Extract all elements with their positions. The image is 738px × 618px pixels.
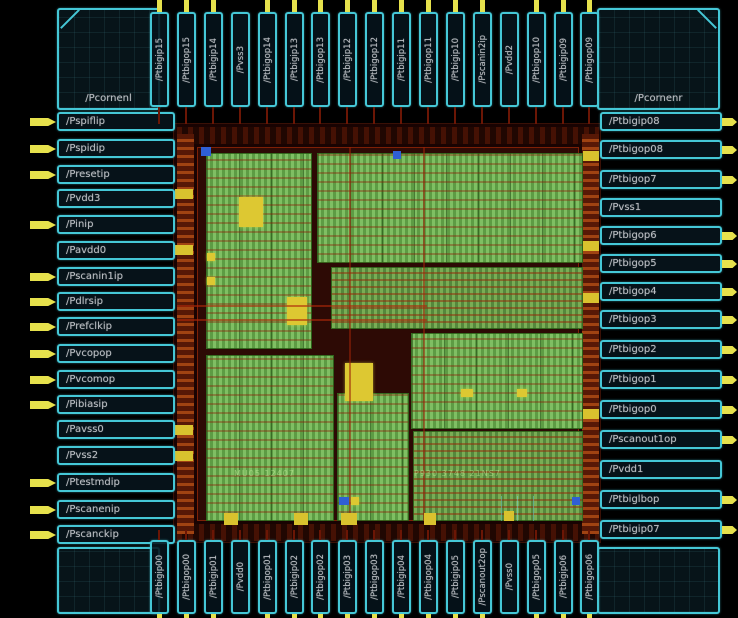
macro-block-center-right [411, 333, 583, 429]
pin-marker [211, 614, 216, 618]
pad-lead [346, 107, 348, 124]
pin-marker [722, 375, 737, 385]
pin-marker [372, 0, 377, 12]
pad-label: /Pinip [66, 220, 93, 230]
pad-label: /Pvdd1 [609, 465, 643, 475]
pin-marker [372, 614, 377, 618]
pin-marker [265, 0, 270, 12]
pin-marker [30, 117, 56, 127]
layout-marker-blue [393, 151, 401, 159]
pin-marker [30, 297, 56, 307]
pad-corner-bottom-right[interactable] [597, 547, 720, 614]
pad-label: /Ptbigop10 [532, 37, 542, 83]
pad-label: /Pvdd2 [505, 45, 515, 74]
pad-ptbigop10[interactable]: /Ptbigop10 [527, 12, 546, 107]
pin-marker [722, 117, 737, 127]
pad-label: /Ptbigip09 [559, 38, 569, 81]
macro-block-topright [317, 153, 583, 263]
pad-ptbiglbop[interactable]: /Ptbiglbop [600, 490, 722, 509]
pin-marker [426, 0, 431, 12]
pad-label: /Ptbigop09 [585, 37, 595, 83]
pad-label: /Pvss2 [66, 451, 98, 461]
pad-pavss0[interactable]: /Pavss0 [57, 420, 175, 439]
pad-lead [454, 107, 456, 124]
pad-label: /Ptbigop2 [609, 345, 657, 355]
pad-ptbigip15[interactable]: /Ptbigip15 [150, 12, 169, 107]
pad-ptbigop03[interactable]: /Ptbigop03 [365, 540, 384, 614]
pad-lead [427, 530, 429, 540]
pad-label: /Ptbigop0 [609, 405, 657, 415]
pad-label: /Ptbigop7 [609, 175, 657, 185]
layout-highlight [207, 253, 215, 261]
pad-ptbigop2[interactable]: /Ptbigop2 [600, 340, 722, 359]
pad-label: /Ptbigip07 [609, 525, 660, 535]
pin-marker [561, 614, 566, 618]
pin-marker [453, 614, 458, 618]
routing-line [517, 496, 518, 521]
pad-label: /Ptbigip04 [397, 555, 407, 598]
pad-ptbigop08[interactable]: /Ptbigop08 [600, 140, 722, 159]
pad-label: /Prefclkip [66, 322, 112, 332]
die-marking-left: MU05 12407 [234, 469, 295, 478]
pad-pvss3[interactable]: /Pvss3 [231, 12, 250, 107]
routing-line [177, 319, 427, 321]
pin-marker [480, 614, 485, 618]
pad-label: /Pcornenl [59, 93, 158, 104]
pad-lead [481, 530, 483, 540]
pad-label: /Ptbigop1 [609, 375, 657, 385]
ring-via-cluster [424, 513, 436, 525]
pin-marker [184, 614, 189, 618]
pin-marker [30, 400, 56, 410]
pad-ptbigop3[interactable]: /Ptbigop3 [600, 310, 722, 329]
pin-marker [561, 0, 566, 12]
pad-label: /Pspidip [66, 144, 105, 154]
pin-marker [30, 505, 56, 515]
pin-marker [534, 0, 539, 12]
pad-lead [266, 107, 268, 124]
pad-label: /Ptbigop13 [316, 37, 326, 83]
routing-line [533, 496, 534, 521]
pin-marker [157, 0, 162, 12]
pad-prefclkip[interactable]: /Prefclkip [57, 317, 175, 336]
pad-label: /Ptbigip13 [290, 38, 300, 81]
layout-marker-blue [201, 147, 211, 156]
pin-marker [30, 144, 56, 154]
ring-via-cluster [175, 189, 193, 199]
pad-lead [427, 107, 429, 124]
pad-label: /Ptbigop3 [609, 315, 657, 325]
pad-lead [346, 530, 348, 540]
routing-line [177, 305, 427, 307]
pad-pscanout2op[interactable]: /Pscanout2op [473, 540, 492, 614]
pad-label: /Pibiasip [66, 400, 108, 410]
pad-pscanin2ip[interactable]: /Pscanin2ip [473, 12, 492, 107]
pad-label: /Ptbigop15 [182, 37, 192, 83]
pin-marker [30, 530, 56, 540]
pad-ptbigop15[interactable]: /Ptbigop15 [177, 12, 196, 107]
pin-marker [722, 435, 737, 445]
pad-pinip[interactable]: /Pinip [57, 215, 175, 234]
ring-via-cluster [583, 241, 599, 251]
pin-marker [453, 0, 458, 12]
macro-block-bottomleft [206, 355, 334, 521]
pin-marker [30, 322, 56, 332]
pin-marker [587, 0, 592, 12]
power-ring-right [582, 134, 599, 534]
ring-via-cluster [341, 513, 357, 525]
pad-label: /Ptbigip06 [559, 555, 569, 598]
pad-ptbigip11[interactable]: /Ptbigip11 [392, 12, 411, 107]
pad-label: /Ptbigip05 [451, 555, 461, 598]
pad-label: /Presetip [66, 170, 110, 180]
pad-pspidip[interactable]: /Pspidip [57, 139, 175, 158]
pin-marker [722, 525, 737, 535]
pad-lead [293, 530, 295, 540]
pin-marker [722, 145, 737, 155]
pad-lead [481, 107, 483, 124]
pad-label: /Pscanout2op [478, 548, 488, 605]
pad-pvss2[interactable]: /Pvss2 [57, 446, 175, 465]
pad-ptestmdip[interactable]: /Ptestmdip [57, 473, 175, 492]
pad-label: /Ptbigip00 [155, 555, 165, 598]
pad-ptbigip13[interactable]: /Ptbigip13 [285, 12, 304, 107]
pin-marker [722, 259, 737, 269]
pad-label: /Pvss0 [505, 563, 515, 590]
corner-notch [60, 9, 80, 29]
pad-lead [158, 530, 160, 540]
pad-ptbigop09[interactable]: /Ptbigop09 [580, 12, 599, 107]
pad-label: /Ptbigip01 [209, 555, 219, 598]
pad-label: /Pspiflip [66, 117, 105, 127]
pin-marker [184, 0, 189, 12]
pad-ptbigop14[interactable]: /Ptbigop14 [258, 12, 277, 107]
pin-marker [534, 614, 539, 618]
pad-label: /Ptbigop02 [316, 554, 326, 600]
pad-lead [293, 107, 295, 124]
pad-label: /Ptbigip02 [290, 555, 300, 598]
pin-marker [265, 614, 270, 618]
pad-label: /Pcornenr [599, 93, 718, 104]
pin-marker [587, 614, 592, 618]
ring-via-cluster [175, 425, 193, 435]
pad-label: /Ptbiglbop [609, 495, 659, 505]
pad-label: /Pscanckip [66, 530, 119, 540]
ring-via-cluster [583, 151, 599, 161]
layout-highlight [461, 389, 473, 397]
pad-lead [373, 107, 375, 124]
pad-label: /Pscanout1op [609, 435, 677, 445]
pad-label: /Pavdd0 [66, 246, 106, 256]
pad-label: /Ptbigop01 [263, 554, 273, 600]
pin-marker [292, 0, 297, 12]
pad-ptbigip05[interactable]: /Ptbigip05 [446, 540, 465, 614]
layout-viewer-canvas: MU05 12407 P930 3748 21NS7 /Pcornenl /Pc… [0, 0, 738, 618]
pin-marker [30, 170, 56, 180]
pad-lead [508, 530, 510, 540]
pad-pvcomop[interactable]: /Pvcomop [57, 370, 175, 389]
pad-corner-top-right[interactable]: /Pcornenr [597, 8, 720, 110]
corner-notch [697, 9, 717, 29]
pad-lead [400, 530, 402, 540]
ring-via-cluster [224, 513, 238, 525]
layout-marker-blue [572, 497, 580, 505]
pad-pvdd1[interactable]: /Pvdd1 [600, 460, 722, 479]
pad-pvcopop[interactable]: /Pvcopop [57, 344, 175, 363]
pin-marker [722, 405, 737, 415]
routing-line [501, 496, 502, 521]
pad-lead [185, 107, 187, 124]
pad-ptbigop05[interactable]: /Ptbigop05 [527, 540, 546, 614]
pad-ptbigop13[interactable]: /Ptbigop13 [311, 12, 330, 107]
pin-marker [722, 345, 737, 355]
pad-label: /Pvss3 [236, 46, 246, 73]
pad-lead [266, 530, 268, 540]
pin-marker [399, 0, 404, 12]
pad-label: /Ptestmdip [66, 478, 120, 488]
pad-label: /Ptbigip10 [451, 38, 461, 81]
pin-marker [399, 614, 404, 618]
pad-label: /Ptbigop6 [609, 231, 657, 241]
pin-marker [345, 0, 350, 12]
ring-via-cluster [175, 245, 193, 255]
pad-ptbigop06[interactable]: /Ptbigop06 [580, 540, 599, 614]
pin-marker [722, 495, 737, 505]
pin-marker [292, 614, 297, 618]
pad-ptbigip10[interactable]: /Ptbigip10 [446, 12, 465, 107]
pad-label: /Pvdd0 [236, 562, 246, 591]
pad-lead [212, 107, 214, 124]
pin-marker [345, 614, 350, 618]
routing-line [349, 147, 351, 521]
die-marking-right: P930 3748 21NS7 [414, 469, 501, 478]
pad-label: /Ptbigop03 [370, 554, 380, 600]
pad-ptbigip02[interactable]: /Ptbigip02 [285, 540, 304, 614]
pad-label: /Ptbigip15 [155, 38, 165, 81]
pad-label: /Pscanenip [66, 505, 120, 515]
routing-line [423, 147, 425, 521]
pad-ptbigip00[interactable]: /Ptbigip00 [150, 540, 169, 614]
pad-ptbigip01[interactable]: /Ptbigip01 [204, 540, 223, 614]
layout-marker-blue [339, 497, 349, 505]
pad-label: /Pscanin2ip [478, 35, 488, 83]
pin-marker [722, 315, 737, 325]
pin-marker [318, 614, 323, 618]
pad-label: /Pscanin1ip [66, 272, 123, 282]
pin-marker [30, 220, 56, 230]
pad-label: /Ptbigop08 [609, 145, 663, 155]
pad-label: /Ptbigip03 [343, 555, 353, 598]
pad-label: /Ptbigip14 [209, 38, 219, 81]
pad-lead [158, 107, 160, 124]
pin-marker [30, 349, 56, 359]
ring-via-cluster [294, 513, 308, 525]
die-area: MU05 12407 P930 3748 21NS7 [173, 123, 601, 543]
ring-via-cluster [175, 451, 193, 461]
pad-pibiasip[interactable]: /Pibiasip [57, 395, 175, 414]
pin-marker [30, 272, 56, 282]
pad-ptbigip04[interactable]: /Ptbigip04 [392, 540, 411, 614]
pad-ptbigip07[interactable]: /Ptbigip07 [600, 520, 722, 539]
pad-ptbigop0[interactable]: /Ptbigop0 [600, 400, 722, 419]
pad-ptbigop6[interactable]: /Ptbigop6 [600, 226, 722, 245]
pad-label: /Pavss0 [66, 425, 104, 435]
pad-pscanout1op[interactable]: /Pscanout1op [600, 430, 722, 449]
pad-ptbigop12[interactable]: /Ptbigop12 [365, 12, 384, 107]
pin-marker [426, 614, 431, 618]
pad-lead [588, 107, 590, 124]
pin-marker [157, 614, 162, 618]
pad-pdlrsip[interactable]: /Pdlrsip [57, 292, 175, 311]
power-ring-top [177, 127, 599, 144]
pad-presetip[interactable]: /Presetip [57, 165, 175, 184]
layout-highlight [351, 497, 359, 505]
pad-lead [400, 107, 402, 124]
pin-marker [722, 175, 737, 185]
pad-label: /Ptbigop11 [424, 37, 434, 83]
pad-lead [319, 107, 321, 124]
pad-lead [212, 530, 214, 540]
pin-marker [318, 0, 323, 12]
layout-highlight [239, 197, 263, 227]
pad-pvss0[interactable]: /Pvss0 [500, 540, 519, 614]
pin-marker [722, 231, 737, 241]
pad-ptbigip06[interactable]: /Ptbigip06 [554, 540, 573, 614]
pad-lead [185, 530, 187, 540]
pad-label: /Pvcomop [66, 375, 115, 385]
pad-lead [562, 107, 564, 124]
pad-label: /Ptbigop5 [609, 259, 657, 269]
pad-label: /Ptbigip12 [343, 38, 353, 81]
pad-pscanin1ip[interactable]: /Pscanin1ip [57, 267, 175, 286]
pad-lead [319, 530, 321, 540]
pad-ptbigop01[interactable]: /Ptbigop01 [258, 540, 277, 614]
pad-label: /Pvss1 [609, 203, 641, 213]
pad-corner-bottom-left[interactable] [57, 547, 160, 614]
pad-label: /Pvdd3 [66, 194, 100, 204]
pad-ptbigop02[interactable]: /Ptbigop02 [311, 540, 330, 614]
pad-ptbigop4[interactable]: /Ptbigop4 [600, 282, 722, 301]
pad-ptbigip12[interactable]: /Ptbigip12 [338, 12, 357, 107]
pin-marker [480, 0, 485, 12]
pad-label: /Ptbigip08 [609, 117, 660, 127]
pad-label: /Ptbigop4 [609, 287, 657, 297]
pad-pavdd0[interactable]: /Pavdd0 [57, 241, 175, 260]
pad-label: /Ptbigop06 [585, 554, 595, 600]
pad-lead [373, 530, 375, 540]
pad-lead [535, 530, 537, 540]
pad-ptbigop7[interactable]: /Ptbigop7 [600, 170, 722, 189]
pad-label: /Pvcopop [66, 349, 112, 359]
pin-marker [722, 287, 737, 297]
pad-pscanenip[interactable]: /Pscanenip [57, 500, 175, 519]
pad-ptbigip08[interactable]: /Ptbigip08 [600, 112, 722, 131]
pad-label: /Ptbigop12 [370, 37, 380, 83]
pad-lead [454, 530, 456, 540]
pad-pvdd0[interactable]: /Pvdd0 [231, 540, 250, 614]
pad-lead [239, 530, 241, 540]
layout-highlight [517, 389, 527, 397]
pad-pvss1[interactable]: /Pvss1 [600, 198, 722, 217]
pad-ptbigop00[interactable]: /Ptbigop00 [177, 540, 196, 614]
pad-ptbigop1[interactable]: /Ptbigop1 [600, 370, 722, 389]
pad-ptbigip09[interactable]: /Ptbigip09 [554, 12, 573, 107]
pin-marker [30, 375, 56, 385]
pad-label: /Ptbigip11 [397, 38, 407, 81]
pad-ptbigop5[interactable]: /Ptbigop5 [600, 254, 722, 273]
pad-lead [588, 530, 590, 540]
ring-via-cluster [504, 511, 514, 521]
pad-lead [239, 107, 241, 124]
pad-pvdd2[interactable]: /Pvdd2 [500, 12, 519, 107]
pad-ptbigop11[interactable]: /Ptbigop11 [419, 12, 438, 107]
pin-marker [211, 0, 216, 12]
pad-lead [562, 530, 564, 540]
pad-lead [535, 107, 537, 124]
pad-ptbigip03[interactable]: /Ptbigip03 [338, 540, 357, 614]
pad-label: /Ptbigop00 [182, 554, 192, 600]
pad-corner-top-left[interactable]: /Pcornenl [57, 8, 160, 110]
pad-label: /Ptbigop04 [424, 554, 434, 600]
pad-label: /Pdlrsip [66, 297, 103, 307]
ring-via-cluster [583, 409, 599, 419]
pin-marker [30, 478, 56, 488]
pad-lead [508, 107, 510, 124]
pad-label: /Ptbigop14 [263, 37, 273, 83]
pad-ptbigop04[interactable]: /Ptbigop04 [419, 540, 438, 614]
pad-label: /Ptbigop05 [532, 554, 542, 600]
layout-highlight [207, 277, 215, 285]
pad-pvdd3[interactable]: /Pvdd3 [57, 189, 175, 208]
ring-via-cluster [583, 293, 599, 303]
pad-ptbigip14[interactable]: /Ptbigip14 [204, 12, 223, 107]
